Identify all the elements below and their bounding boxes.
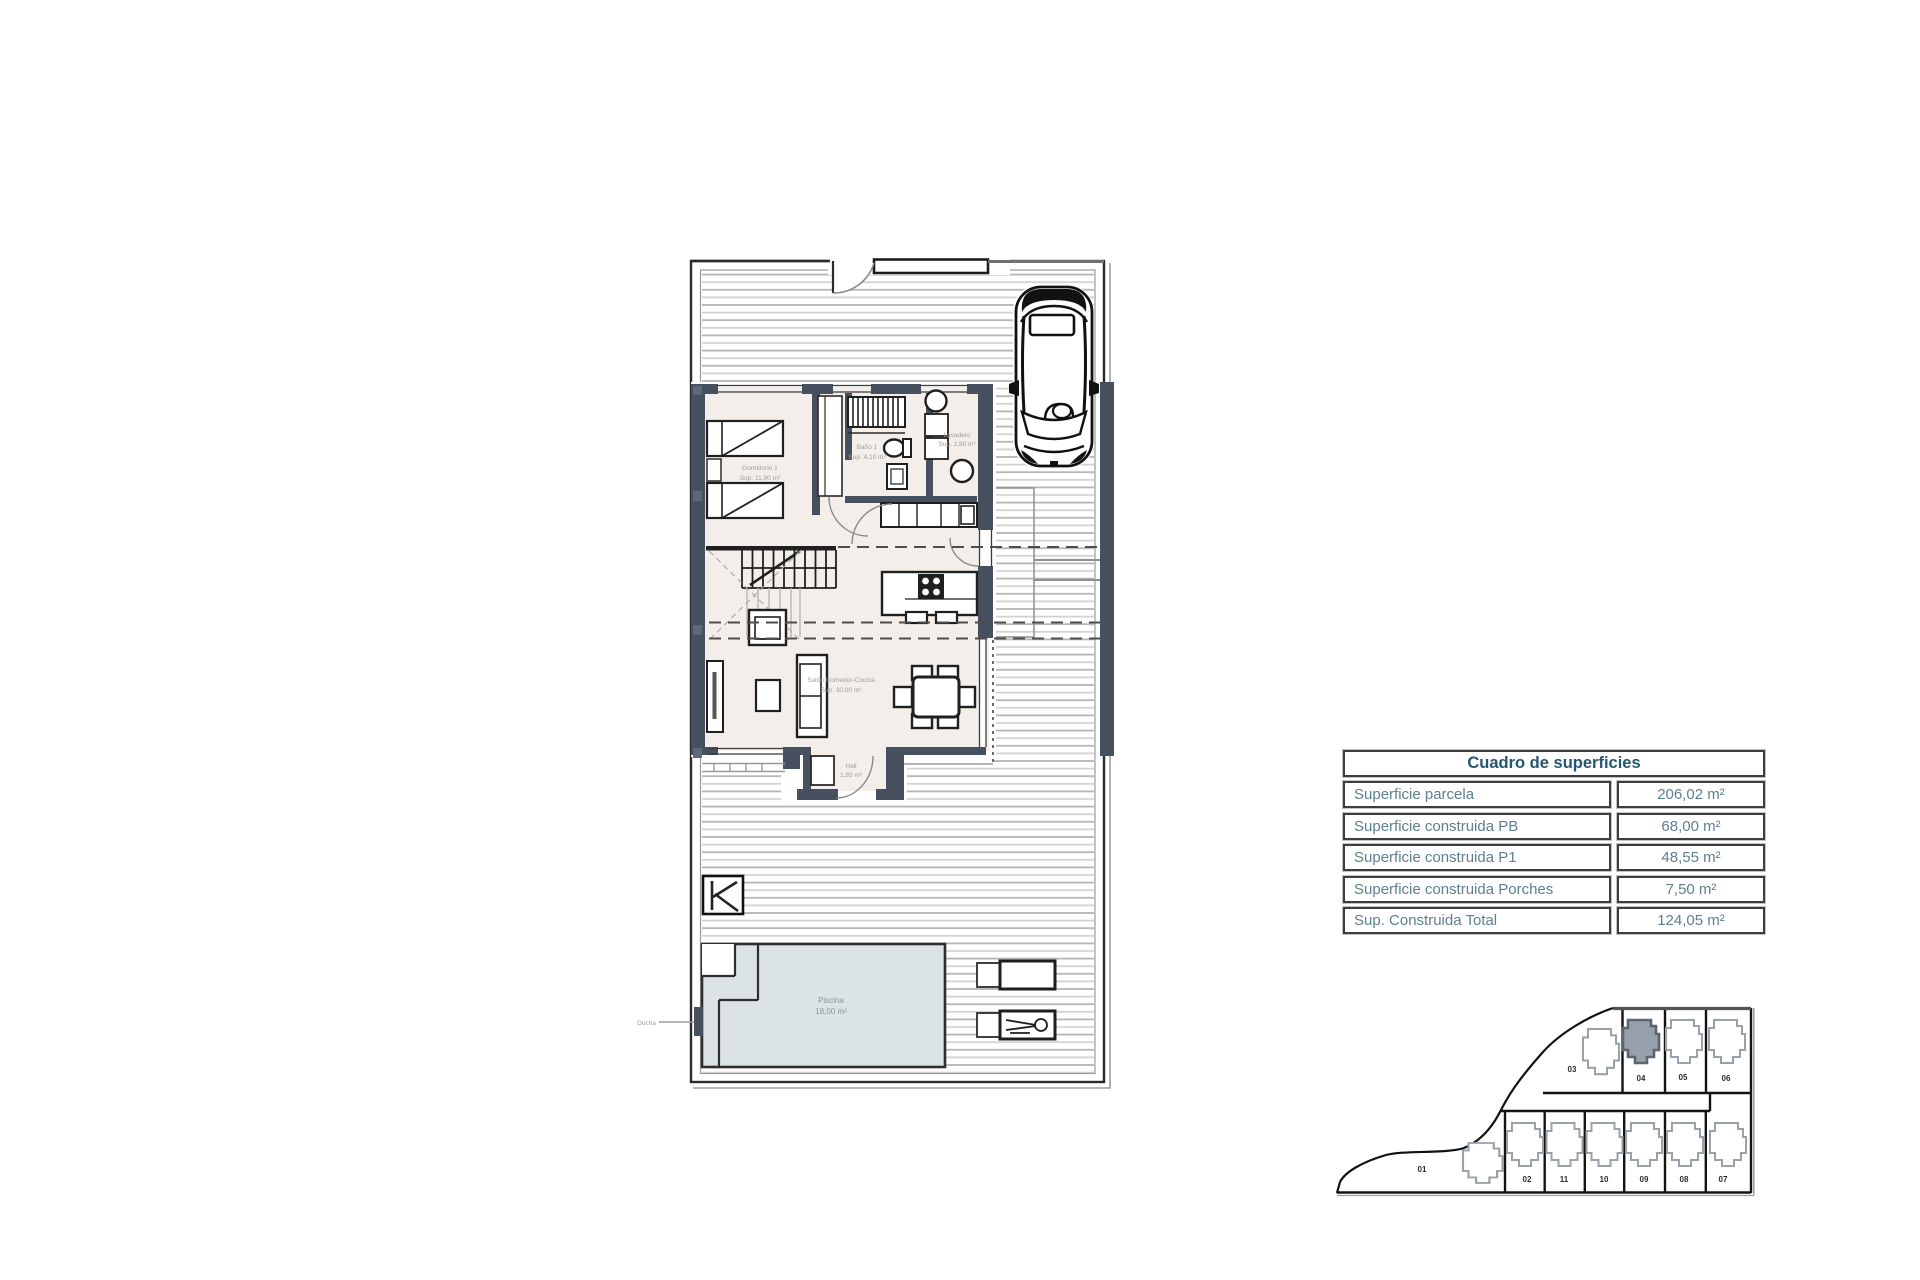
svg-text:Sup. 30,00 m²: Sup. 30,00 m²: [821, 687, 863, 694]
svg-text:05: 05: [1679, 1073, 1688, 1082]
svg-text:1,85 m²: 1,85 m²: [840, 772, 863, 779]
svg-text:Lavadero: Lavadero: [943, 432, 970, 439]
svg-text:11: 11: [1560, 1175, 1569, 1184]
svg-text:08: 08: [1680, 1175, 1689, 1184]
svg-text:Sup. 11,90 m²: Sup. 11,90 m²: [740, 475, 781, 482]
svg-text:02: 02: [1523, 1175, 1532, 1184]
svg-text:Piscina: Piscina: [818, 996, 844, 1005]
svg-text:01: 01: [1418, 1165, 1427, 1174]
svg-text:07: 07: [1719, 1175, 1728, 1184]
svg-text:06: 06: [1722, 1074, 1731, 1083]
svg-text:Sup. 2,80 m²: Sup. 2,80 m²: [938, 441, 976, 448]
svg-text:Salón Comedor-Cocina: Salón Comedor-Cocina: [807, 677, 875, 684]
svg-text:09: 09: [1640, 1175, 1649, 1184]
svg-text:Dormitorio 1: Dormitorio 1: [742, 465, 778, 472]
svg-text:04: 04: [1637, 1074, 1646, 1083]
svg-text:10: 10: [1600, 1175, 1609, 1184]
svg-text:Baño 1: Baño 1: [857, 444, 878, 451]
svg-text:Sup. 4,10 m²: Sup. 4,10 m²: [848, 454, 886, 461]
svg-text:18,00 m²: 18,00 m²: [815, 1007, 847, 1016]
svg-text:Ducha: Ducha: [637, 1020, 656, 1027]
svg-text:03: 03: [1568, 1065, 1577, 1074]
svg-text:Hall: Hall: [845, 763, 857, 770]
